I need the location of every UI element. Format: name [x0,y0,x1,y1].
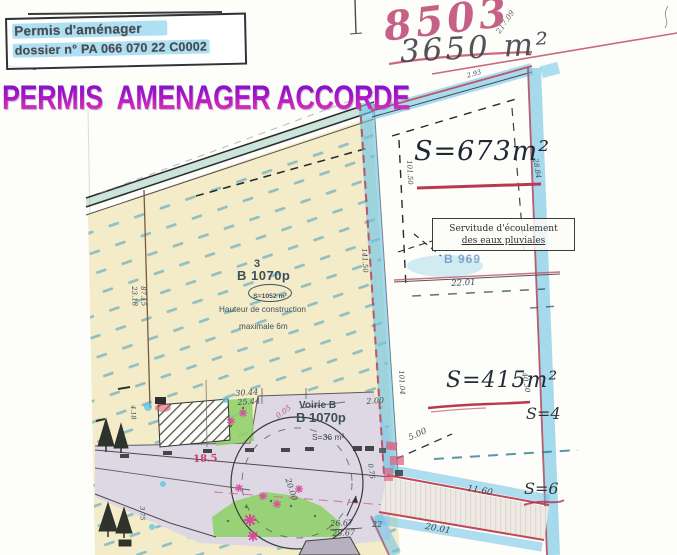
lot3-height-note1: Hauteur de construction [219,305,306,314]
voirie-code: B 1070p [296,410,346,425]
lot-east-upper-label: S=4 [526,404,561,423]
dim-4-18: 4.18 [129,405,138,420]
dim-101-04: 101.04 [397,370,406,395]
lot673-area-label: S=673m² [414,136,550,167]
dim-3-75: 3.75 [138,506,147,521]
dim-18-5: 18.5 [193,453,218,465]
hatched-structure [155,397,230,447]
lot415-area-label: S=415m² [446,368,558,393]
approval-word2: AMENAGER ACCORDE [116,79,409,117]
dim-22: 22 [372,520,382,529]
lot3-code: B 1070p [237,268,290,283]
lot3-height-note2: maximale 6m [239,322,288,331]
dim-141-50: 141.50 [360,248,369,273]
dim-22-01: 22.01 [451,278,476,289]
dim-101-50: 101.50 [405,160,414,185]
voirie-area: S=36 m² [312,432,344,442]
servitude-note-box: Servitude d'écoulement des eaux pluviale… [432,218,575,251]
dim-87-15: 87.15 [139,286,148,306]
lot3-area: S=1052 m² [253,293,287,300]
lot-east-lower-label: S=6 [524,479,559,498]
servitude-line1: Servitude d'écoulement [433,223,574,235]
stamp-line2: dossier n° PA 066 070 22 C0002 [13,36,245,61]
drain-ref-label: B 969 [444,252,481,266]
lot3-area-ellipse: S=1052 m² [248,284,292,302]
dim-2-00: 2.00 [366,396,384,406]
permit-stamp-box: Permis d'aménager dossier n° PA 066 070 … [5,13,247,70]
servitude-line2: des eaux pluviales [433,235,574,247]
dim-26-67: 26.67 [330,518,353,528]
approval-word1: PERMIS [2,79,103,117]
scanned-permit-plan: Permis d'aménager dossier n° PA 066 070 … [0,0,677,555]
dim-25-44: 25.44 [237,396,260,407]
dim-28-67: 28.67 [332,528,355,538]
approval-stamp-title: PERMISAMENAGER ACCORDE [2,79,410,118]
dim-23-18: 23.18 [130,286,139,306]
